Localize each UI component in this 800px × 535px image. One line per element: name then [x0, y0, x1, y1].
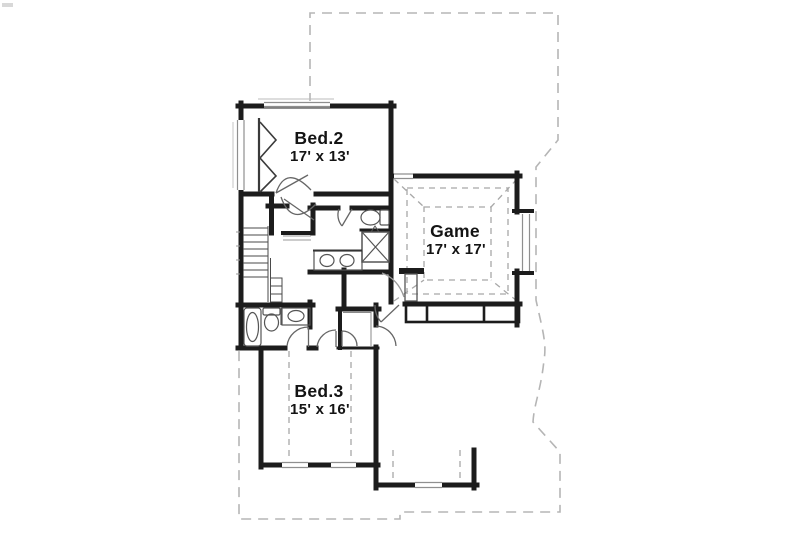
lower-floor-dashed-outline — [239, 13, 560, 519]
door-swing-icon — [376, 326, 396, 346]
room-label-game: Game — [430, 221, 480, 241]
room-dims-bed3: 15' x 16' — [290, 401, 350, 418]
window-icon — [520, 214, 533, 271]
floor-plan-drawing: Bed.2 17' x 13' Game 17' x 17' Bed.3 15'… — [0, 0, 800, 535]
room-dims-bed2: 17' x 13' — [290, 148, 350, 165]
door-swing-icon — [338, 209, 352, 226]
window-icon — [233, 120, 247, 190]
tray-ceiling-icon — [289, 179, 517, 483]
toilet-icon — [361, 210, 389, 225]
room-dims-game: 17' x 17' — [426, 241, 486, 258]
shower-icon — [362, 226, 389, 262]
door-swing-icon — [276, 175, 316, 220]
window-icon — [282, 461, 308, 469]
closet-shelf-lines — [343, 312, 371, 346]
window-icon — [415, 481, 442, 489]
window-icon — [394, 173, 413, 180]
sink-vanity-icon — [281, 308, 310, 325]
bathtub-icon — [244, 308, 261, 346]
upper-bathroom — [313, 210, 389, 270]
bifold-closet-door-icon — [259, 118, 276, 192]
door-swing-icon — [382, 273, 417, 301]
room-label-bed3: Bed.3 — [294, 381, 343, 401]
window-icon — [258, 99, 334, 108]
floor-plan-page: Bed.2 17' x 13' Game 17' x 17' Bed.3 15'… — [0, 0, 800, 535]
room-label-bed2: Bed.2 — [294, 128, 343, 148]
window-icon — [331, 461, 356, 469]
door-swing-icon — [317, 330, 336, 347]
door-swing-icon — [287, 327, 309, 347]
double-sink-vanity-icon — [313, 251, 362, 271]
toilet-icon — [263, 308, 280, 331]
lower-bathroom — [244, 308, 310, 346]
game-builtin-niche — [406, 305, 519, 322]
door-swing-icon — [342, 331, 357, 346]
